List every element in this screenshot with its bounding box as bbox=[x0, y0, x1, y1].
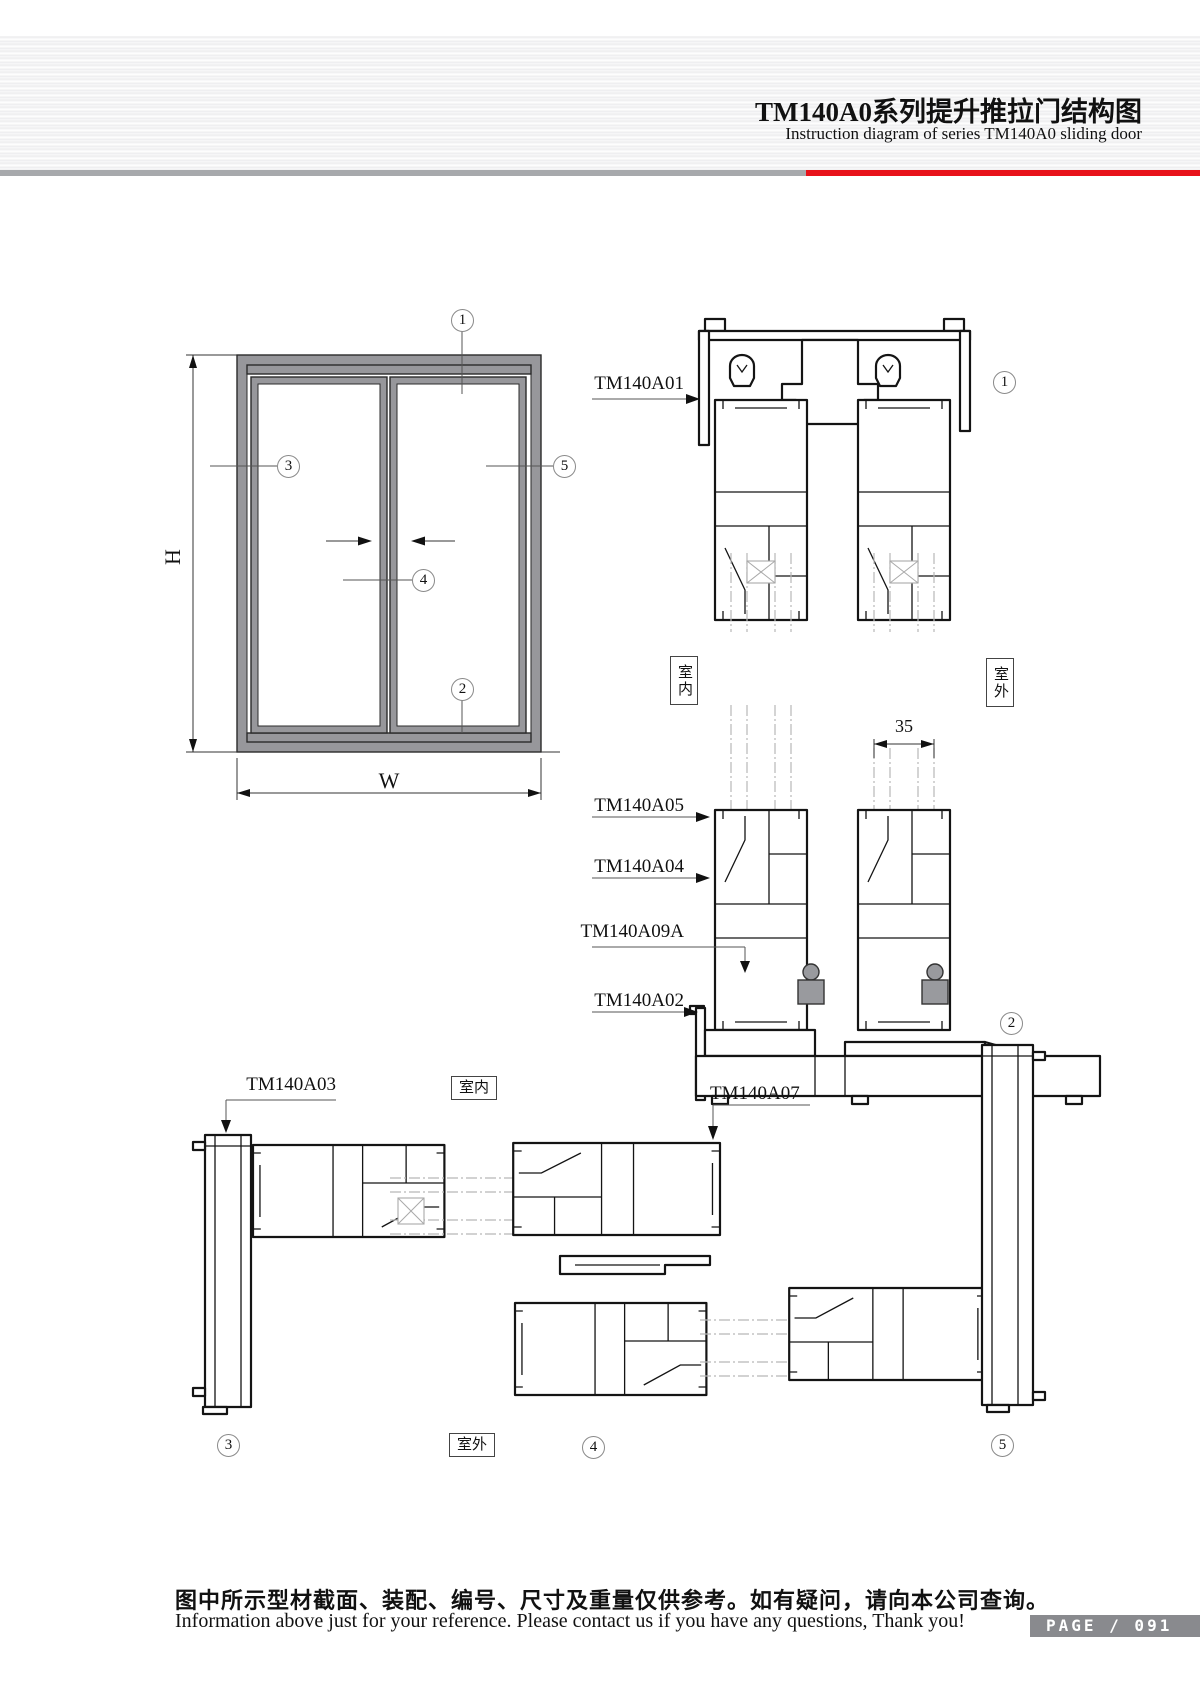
glass-pocket-dim-label: 35 bbox=[889, 716, 919, 737]
header-rule-red bbox=[806, 170, 1200, 176]
sash-top-rail-left bbox=[715, 400, 807, 620]
roller bbox=[927, 964, 943, 980]
outdoor-box-bottom: 室外 bbox=[449, 1433, 495, 1457]
hanger-hook bbox=[876, 355, 900, 386]
h-dimension-line bbox=[186, 355, 237, 752]
callout-3: 3 bbox=[277, 455, 300, 478]
sash-stile bbox=[789, 1288, 985, 1380]
tm140a03-leader bbox=[226, 1100, 336, 1120]
outdoor-box-top: 室外 bbox=[986, 658, 1014, 707]
section-3-drawing bbox=[193, 1100, 528, 1414]
callout-2: 2 bbox=[451, 678, 474, 701]
section-3-callout: 3 bbox=[217, 1434, 240, 1457]
meeting-stile-upper bbox=[513, 1143, 720, 1235]
indoor-box-top: 室内 bbox=[670, 656, 698, 705]
indoor-box-bottom: 室内 bbox=[451, 1076, 497, 1100]
callout-1: 1 bbox=[451, 309, 474, 332]
roller bbox=[803, 964, 819, 980]
page-subtitle: Instruction diagram of series TM140A0 sl… bbox=[785, 124, 1142, 144]
height-dim-label: H bbox=[160, 542, 186, 572]
sash-bottom-rail-left bbox=[715, 810, 807, 1030]
right-jamb-profile bbox=[982, 1045, 1033, 1405]
page-number-badge: PAGE / 091 bbox=[1030, 1615, 1200, 1637]
section-5-callout: 5 bbox=[991, 1434, 1014, 1457]
section-2-callout: 2 bbox=[1000, 1012, 1023, 1035]
section-1-callout: 1 bbox=[993, 371, 1016, 394]
width-dim-label: W bbox=[374, 768, 404, 794]
left-door-glass bbox=[258, 384, 380, 726]
profile-label-tm140a01: TM140A01 bbox=[558, 373, 684, 395]
callout-5: 5 bbox=[553, 455, 576, 478]
left-jamb-profile bbox=[205, 1135, 251, 1407]
bottom-track-bar bbox=[247, 733, 531, 742]
top-track-bar bbox=[247, 365, 531, 374]
top-track-plate bbox=[699, 331, 970, 340]
profile-label-tm140a05: TM140A05 bbox=[558, 795, 684, 817]
meeting-stile-lower bbox=[515, 1303, 706, 1395]
profile-label-tm140a07: TM140A07 bbox=[710, 1083, 840, 1105]
hanger-hook bbox=[730, 355, 754, 386]
profile-label-tm140a03: TM140A03 bbox=[210, 1074, 336, 1096]
section-4-drawing bbox=[513, 1105, 832, 1395]
footer-note-en: Information above just for your referenc… bbox=[175, 1610, 965, 1633]
profile-label-tm140a02: TM140A02 bbox=[558, 990, 684, 1012]
tm140a07-leader bbox=[713, 1105, 810, 1126]
header-rule-gray bbox=[0, 170, 806, 176]
section-4-callout: 4 bbox=[582, 1436, 605, 1459]
section-1-drawing bbox=[592, 319, 970, 632]
right-door-glass bbox=[397, 384, 519, 726]
sash-top-rail-right bbox=[858, 400, 950, 620]
profile-label-tm140a04: TM140A04 bbox=[558, 856, 684, 878]
profile-label-tm140a09a: TM140A09A bbox=[544, 921, 684, 943]
catalog-page: TM140A0系列提升推拉门结构图 Instruction diagram of… bbox=[0, 0, 1200, 1697]
elevation-drawing bbox=[186, 330, 560, 800]
callout-4: 4 bbox=[412, 569, 435, 592]
